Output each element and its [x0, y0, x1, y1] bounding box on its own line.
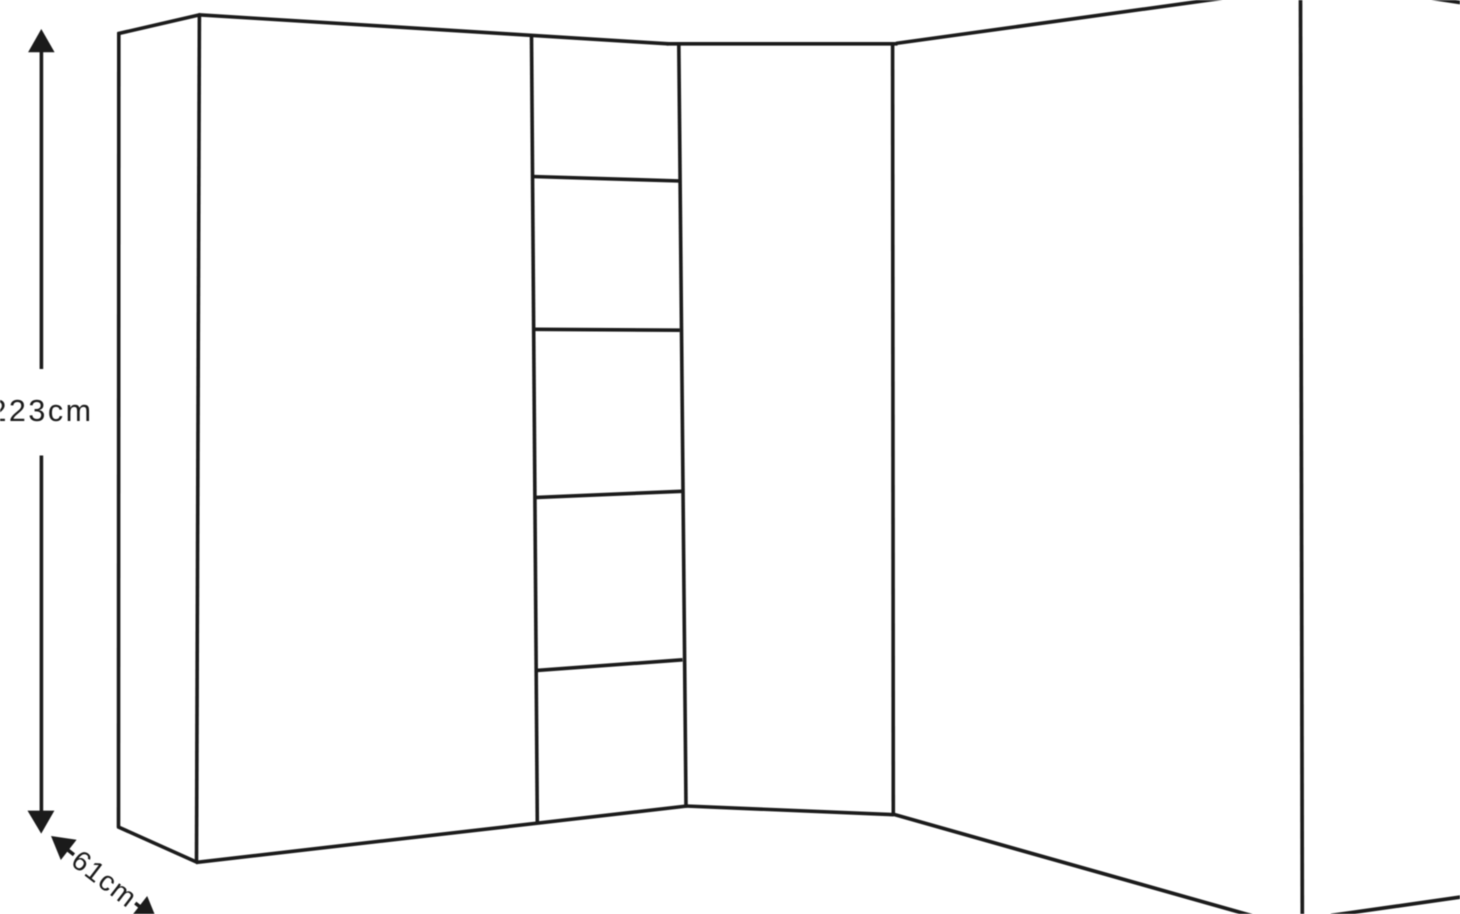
- svg-text:61cm: 61cm: [66, 844, 144, 914]
- svg-text:223cm: 223cm: [0, 394, 94, 428]
